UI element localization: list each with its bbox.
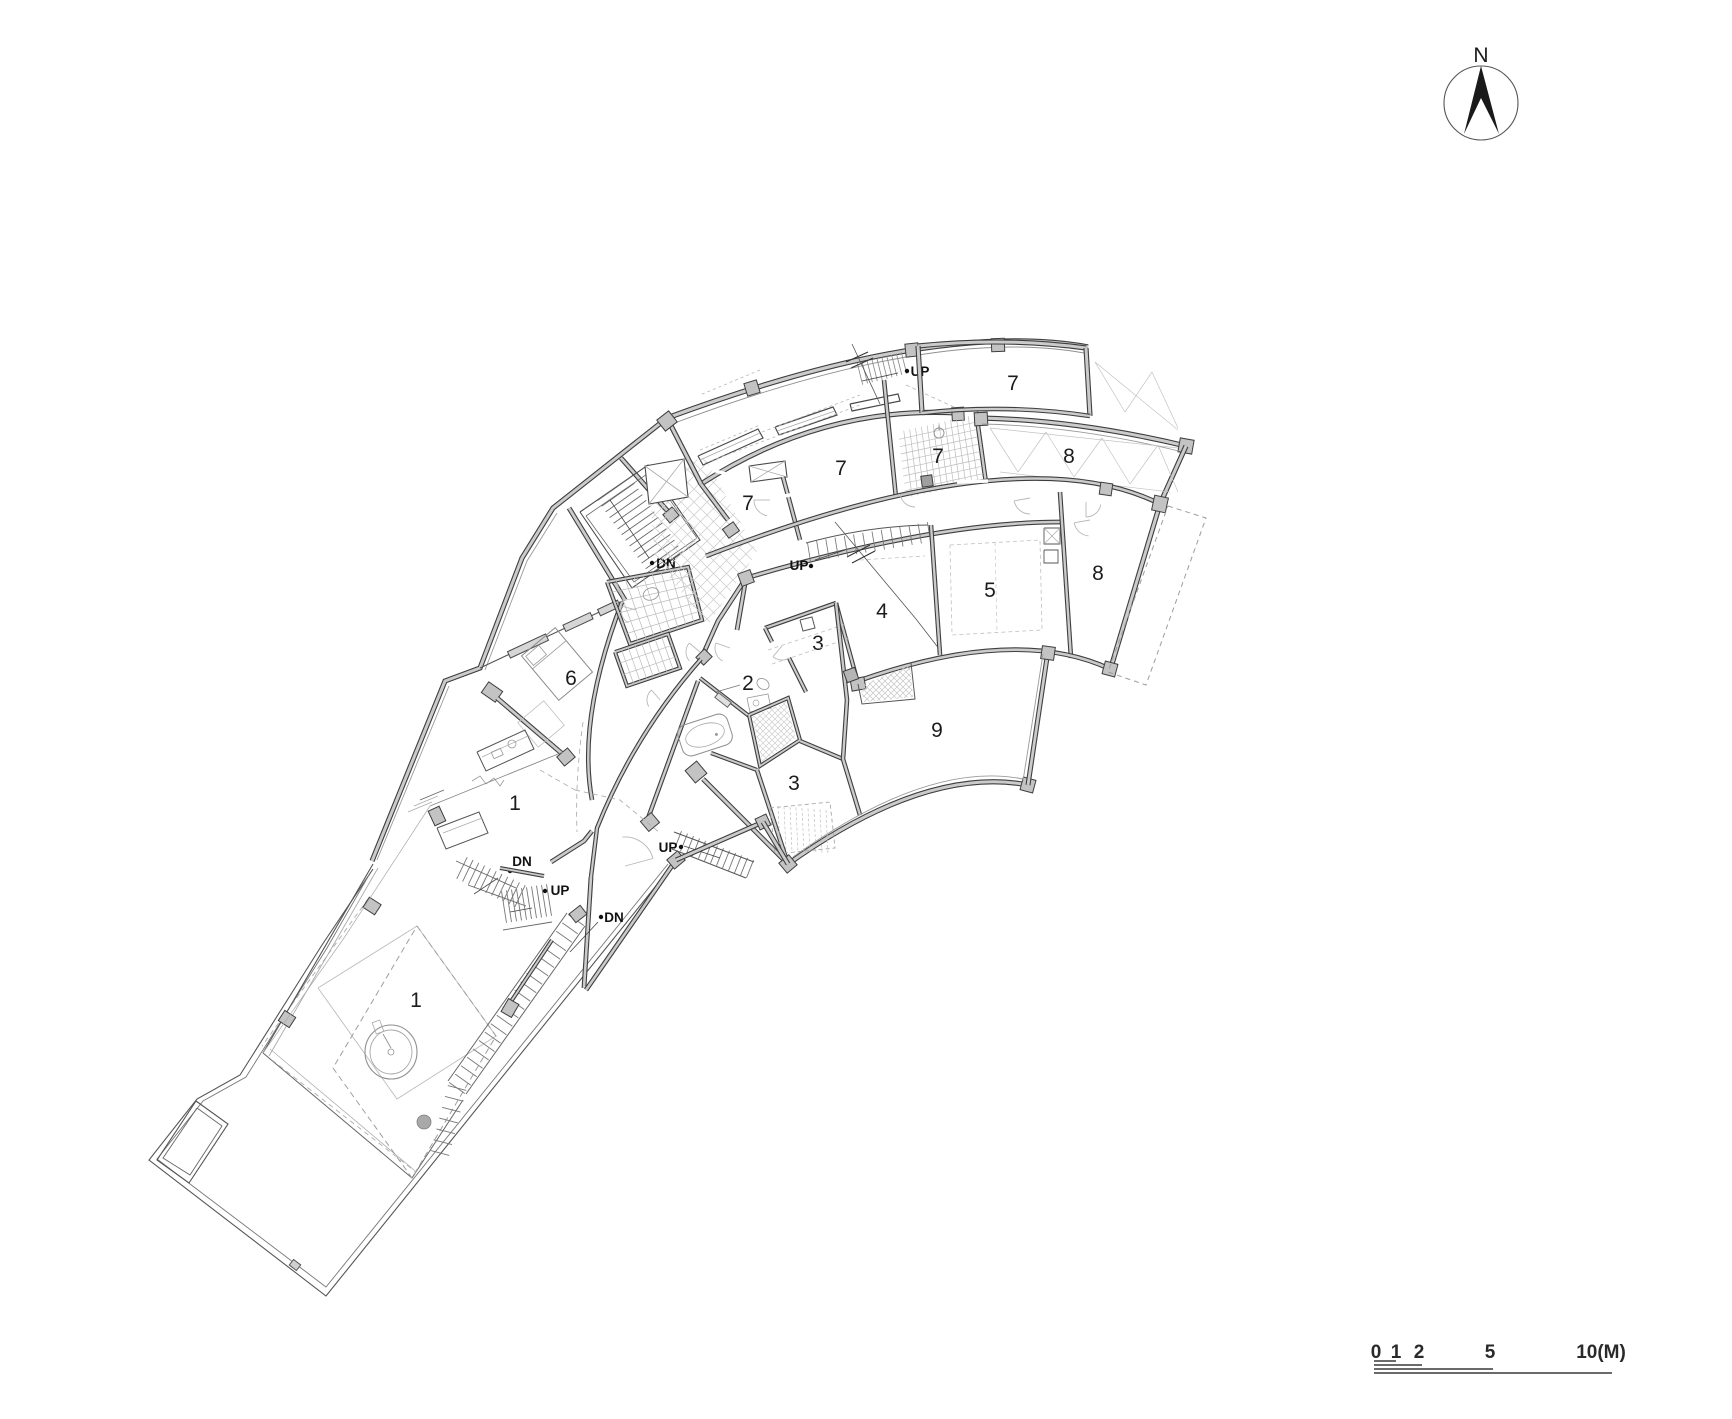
svg-text:5: 5 [984,579,996,602]
svg-text:1: 1 [1391,1342,1402,1363]
svg-text:UP: UP [659,840,678,855]
svg-text:8: 8 [1092,562,1104,585]
svg-text:2: 2 [1414,1342,1425,1363]
svg-text:7: 7 [1007,372,1019,395]
svg-text:DN: DN [604,910,624,925]
svg-text:UP: UP [551,883,570,898]
svg-text:UP: UP [790,558,809,573]
svg-text:N: N [1473,44,1488,67]
svg-text:1: 1 [509,792,521,815]
svg-text:7: 7 [932,445,944,468]
svg-text:9: 9 [931,719,943,742]
svg-text:5: 5 [1485,1342,1496,1363]
svg-text:1: 1 [410,989,422,1012]
svg-text:3: 3 [812,632,824,655]
svg-text:4: 4 [876,600,888,623]
svg-text:3: 3 [788,772,800,795]
svg-text:6: 6 [565,667,577,690]
svg-text:8: 8 [1063,445,1075,468]
svg-text:2: 2 [742,672,754,695]
svg-text:7: 7 [742,492,754,515]
svg-text:7: 7 [835,457,847,480]
svg-text:DN: DN [512,854,532,869]
svg-text:10(M): 10(M) [1576,1342,1626,1363]
svg-text:0: 0 [1371,1342,1382,1363]
